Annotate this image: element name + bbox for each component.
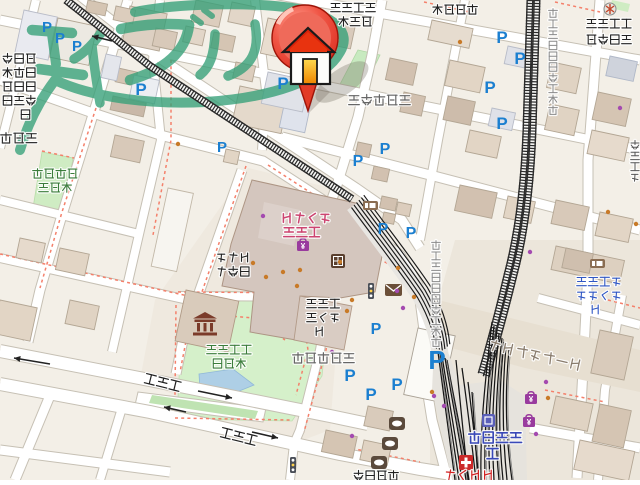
svg-text:P: P — [378, 221, 389, 238]
svg-text:P: P — [514, 49, 525, 68]
svg-text:P: P — [496, 114, 507, 133]
svg-text:P: P — [217, 139, 227, 156]
svg-text:P: P — [484, 78, 495, 97]
svg-text:P: P — [344, 366, 355, 385]
svg-text:P: P — [428, 345, 445, 375]
svg-text:P: P — [277, 74, 288, 93]
svg-text:P: P — [42, 19, 52, 36]
svg-text:¥: ¥ — [529, 395, 534, 404]
svg-text:P: P — [391, 375, 402, 394]
svg-text:P: P — [371, 321, 382, 338]
svg-text:P: P — [72, 38, 82, 55]
svg-text:P: P — [365, 385, 376, 404]
svg-text:P: P — [135, 80, 146, 99]
svg-text:P: P — [406, 225, 417, 242]
svg-text:¥: ¥ — [527, 418, 532, 427]
svg-text:P: P — [380, 141, 391, 158]
svg-text:P: P — [496, 28, 507, 47]
svg-text:P: P — [55, 30, 65, 47]
svg-text:P: P — [353, 153, 364, 170]
svg-text:¥: ¥ — [301, 242, 306, 251]
